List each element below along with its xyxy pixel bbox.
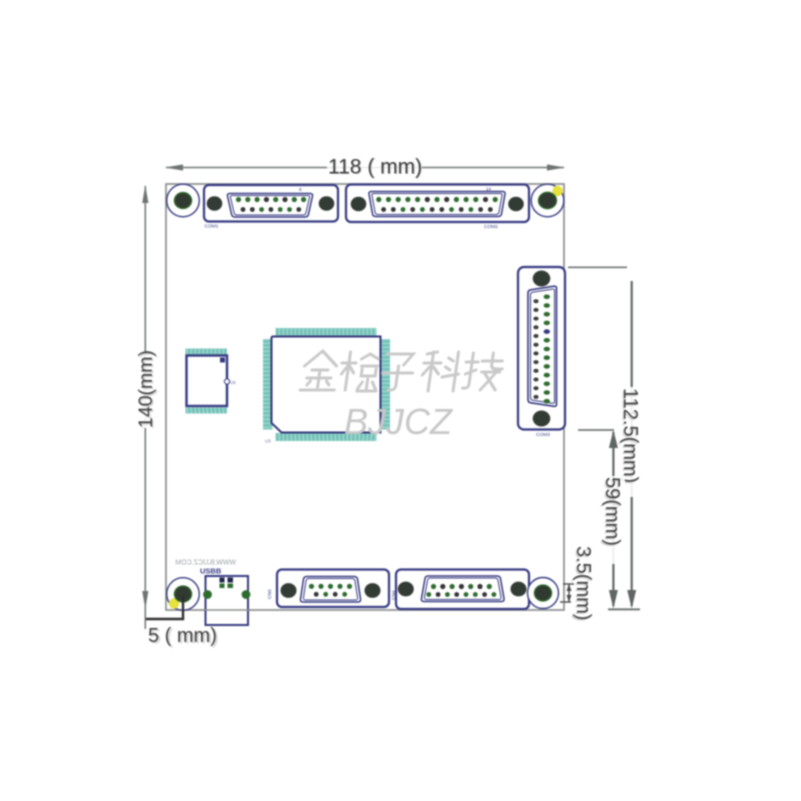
svg-text:140(mm): 140(mm) [135,350,157,428]
svg-text:CN4: CN4 [391,590,397,600]
svg-text:59(mm): 59(mm) [601,477,623,546]
svg-text:U3: U3 [265,439,271,444]
svg-text:COM1: COM1 [205,224,219,230]
svg-text:3.5(mm): 3.5(mm) [572,546,594,620]
svg-text:CN3: CN3 [267,589,273,599]
svg-text:WWW.BJJCZ.COM: WWW.BJJCZ.COM [175,560,236,567]
svg-text:14: 14 [486,187,492,192]
svg-text:USBB: USBB [200,567,222,576]
svg-text:COM3: COM3 [536,432,550,438]
svg-text:5 ( mm): 5 ( mm) [148,625,217,647]
svg-text:118 ( mm): 118 ( mm) [328,156,422,179]
svg-text:COM2: COM2 [484,224,498,230]
svg-text:BJJCZ: BJJCZ [344,401,453,442]
svg-text:U6: U6 [230,380,236,385]
svg-text:112.5(mm): 112.5(mm) [619,388,641,483]
